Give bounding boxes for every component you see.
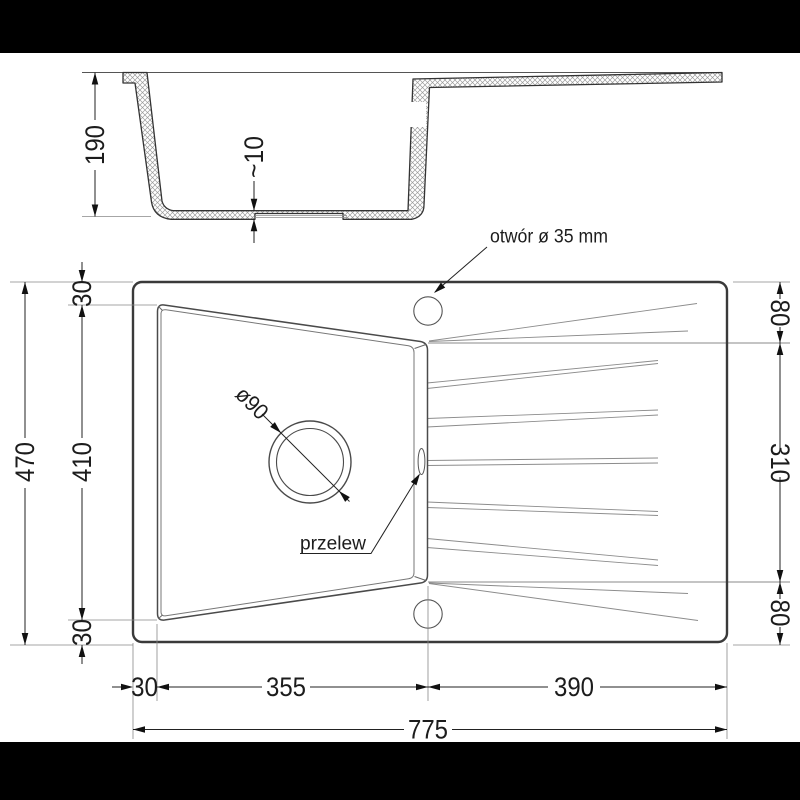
dim-bottom-thickness-group: ~10: [239, 136, 269, 243]
dim-left-bowl-height: 410: [67, 442, 97, 482]
label-hole: otwór ø 35 mm: [490, 227, 608, 248]
right-dimensions: 80 310 80: [733, 282, 795, 645]
dim-right-bottom-strip: 80: [765, 600, 795, 627]
label-drain-diameter: ø90: [230, 381, 273, 424]
hole-label-group: otwór ø 35 mm: [432, 227, 608, 296]
dim-bottom-bowl-width: 355: [266, 672, 306, 702]
dim-section-depth: 190: [80, 125, 110, 165]
sink-technical-drawing: 190 ~10: [0, 0, 800, 800]
dim-left-total: 470: [10, 442, 40, 482]
label-overflow: przelew: [300, 534, 366, 555]
dim-bottom-left-rim: 30: [131, 672, 158, 702]
plan-view: ø90 przelew otwór ø 35 mm 470: [10, 227, 795, 745]
letterbox-bottom: [0, 742, 800, 800]
left-dimensions: 470 30 410 30: [10, 262, 157, 664]
drainboard-grooves: [427, 361, 658, 566]
section-overflow-gap: [409, 102, 426, 127]
section-view: 190 ~10: [80, 73, 722, 244]
sink-outline: [133, 282, 727, 642]
dim-left-top-rim: 30: [67, 280, 97, 307]
dim-bottom-total-width: 775: [408, 715, 448, 745]
dim-bottom-drainer-width: 390: [554, 672, 594, 702]
overflow-slot: [418, 449, 425, 475]
section-profile: [123, 73, 722, 220]
faucet-hole-top: [414, 297, 442, 325]
dim-right-top-strip: 80: [765, 300, 795, 327]
letterbox-top: [0, 0, 800, 53]
dim-bottom-thickness: ~10: [239, 136, 269, 178]
page: 190 ~10: [0, 0, 800, 800]
dim-left-bottom-rim: 30: [67, 619, 97, 646]
drainboard-edges: [429, 304, 698, 621]
dim-right-drainer-height: 310: [765, 443, 795, 483]
